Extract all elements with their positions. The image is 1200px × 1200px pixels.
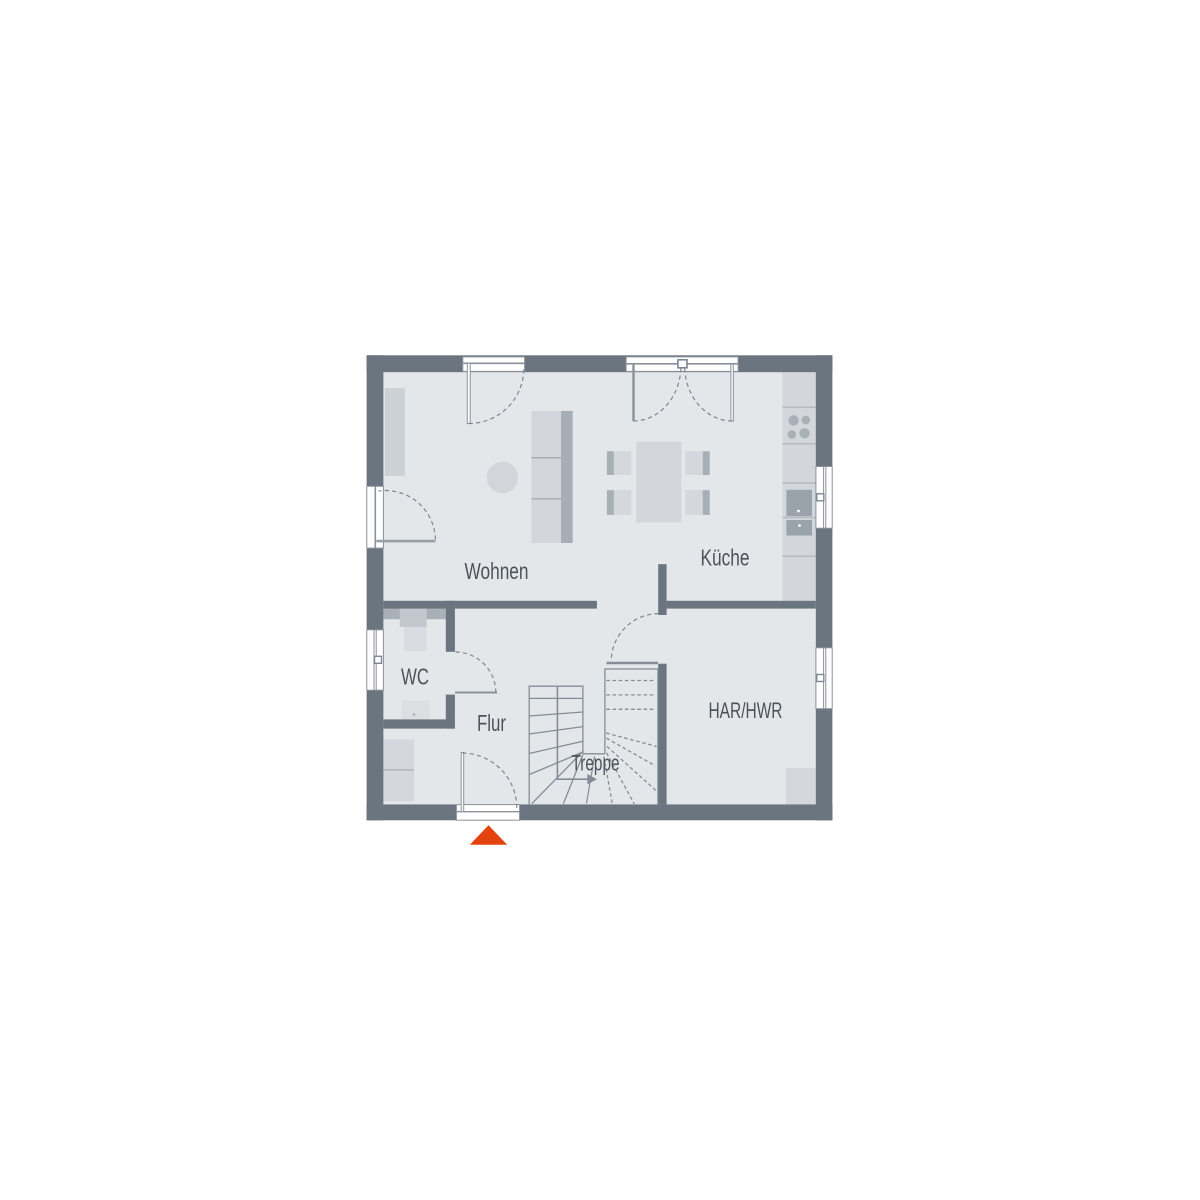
svg-text:Wohnen: Wohnen — [465, 558, 529, 584]
svg-text:Flur: Flur — [477, 710, 506, 736]
svg-text:WC: WC — [401, 664, 429, 690]
svg-text:Küche: Küche — [701, 545, 750, 571]
svg-text:HAR/HWR: HAR/HWR — [709, 698, 783, 723]
svg-text:Treppe: Treppe — [572, 751, 620, 776]
